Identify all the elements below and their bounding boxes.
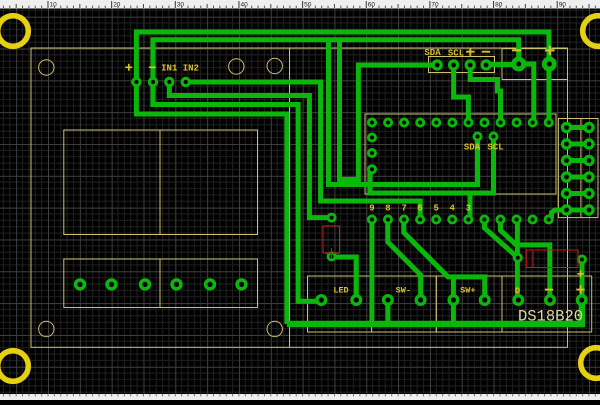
svg-text:LED: LED (333, 285, 348, 295)
svg-text:4: 4 (450, 204, 456, 214)
svg-text:SW+: SW+ (460, 285, 475, 295)
svg-text:SDA: SDA (424, 48, 441, 58)
svg-text:SCL: SCL (448, 49, 464, 59)
svg-text:SW-: SW- (396, 285, 411, 295)
svg-text:8: 8 (385, 204, 390, 214)
svg-text:40: 40 (241, 2, 249, 9)
svg-text:7: 7 (401, 204, 406, 214)
svg-text:30: 30 (177, 2, 185, 9)
svg-text:3: 3 (466, 204, 471, 214)
svg-text:DS18B20: DS18B20 (518, 308, 583, 326)
svg-text:60: 60 (368, 2, 376, 9)
svg-text:70: 70 (431, 2, 439, 9)
svg-text:20: 20 (113, 2, 121, 9)
svg-text:SDA: SDA (464, 143, 481, 153)
svg-text:9: 9 (369, 204, 374, 214)
svg-text:10: 10 (50, 2, 58, 9)
svg-text:90: 90 (559, 2, 567, 9)
svg-text:D: D (515, 286, 520, 296)
svg-text:80: 80 (495, 2, 503, 9)
svg-text:IN1 IN2: IN1 IN2 (161, 64, 199, 74)
svg-text:SCL: SCL (487, 143, 503, 153)
svg-text:50: 50 (304, 2, 312, 9)
svg-text:6: 6 (417, 204, 422, 214)
svg-text:5: 5 (433, 204, 438, 214)
